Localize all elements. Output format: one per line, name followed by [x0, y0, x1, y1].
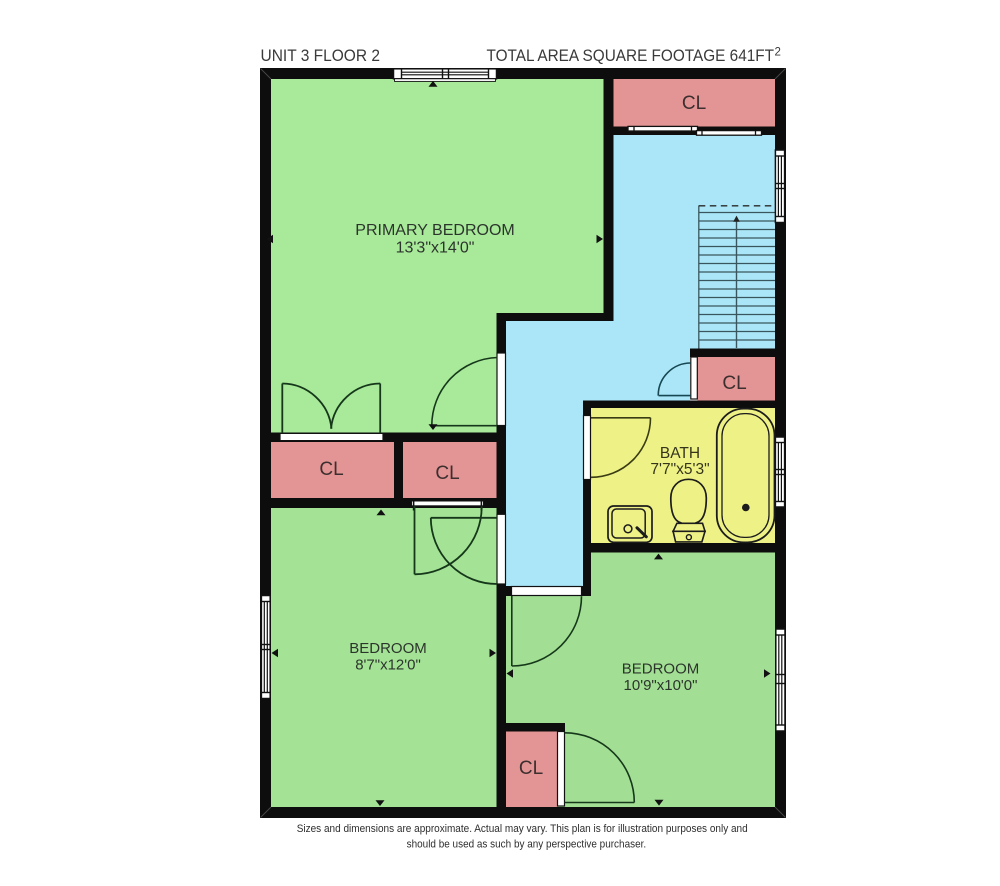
svg-text:13'3"x14'0": 13'3"x14'0" — [396, 240, 475, 257]
svg-text:BEDROOM: BEDROOM — [349, 640, 427, 657]
svg-text:TOTAL AREA SQUARE FOOTAGE 641F: TOTAL AREA SQUARE FOOTAGE 641FT — [487, 46, 775, 65]
svg-text:CL: CL — [682, 93, 706, 114]
svg-text:CL: CL — [435, 463, 459, 484]
svg-text:7'7"x5'3": 7'7"x5'3" — [650, 461, 709, 478]
svg-text:CL: CL — [722, 373, 746, 394]
svg-text:PRIMARY BEDROOM: PRIMARY BEDROOM — [355, 222, 514, 239]
svg-text:BATH: BATH — [660, 445, 700, 462]
svg-text:CL: CL — [519, 758, 543, 779]
svg-text:BEDROOM: BEDROOM — [622, 661, 700, 678]
svg-text:UNIT 3 FLOOR 2: UNIT 3 FLOOR 2 — [261, 46, 381, 65]
svg-text:CL: CL — [319, 459, 343, 480]
svg-text:Sizes and dimensions are appro: Sizes and dimensions are approximate. Ac… — [297, 823, 748, 835]
svg-text:should be used as such by any: should be used as such by any perspectiv… — [407, 839, 647, 851]
svg-text:10'9"x10'0": 10'9"x10'0" — [624, 677, 698, 694]
svg-text:2: 2 — [775, 47, 781, 59]
svg-text:8'7"x12'0": 8'7"x12'0" — [355, 657, 421, 674]
